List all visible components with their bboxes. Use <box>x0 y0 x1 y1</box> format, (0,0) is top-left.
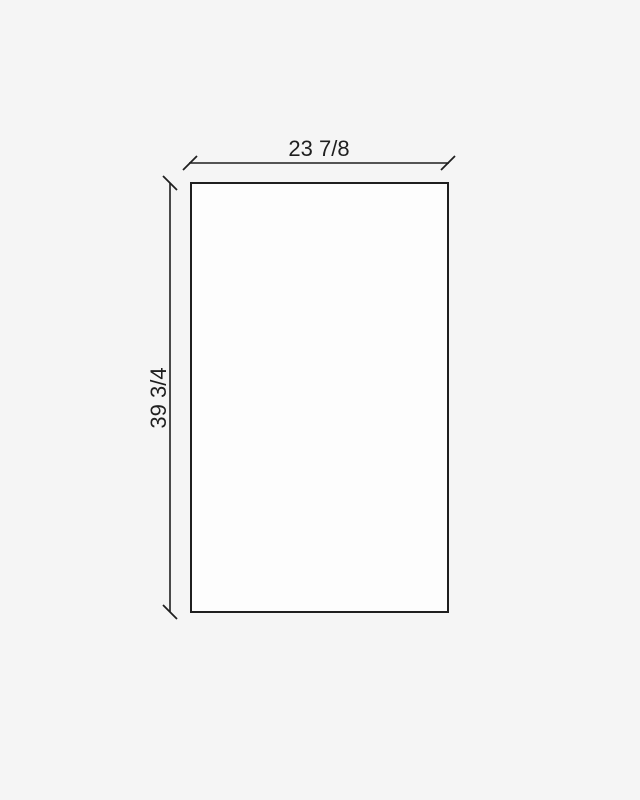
width-dimension-label: 23 7/8 <box>288 136 349 161</box>
width-dimension: 23 7/8 <box>183 136 455 170</box>
height-dimension-label: 39 3/4 <box>146 367 171 428</box>
dimension-drawing: 23 7/8 39 3/4 <box>0 0 640 800</box>
height-dimension: 39 3/4 <box>146 176 177 619</box>
panel-outline <box>191 183 448 612</box>
drawing-canvas: 23 7/8 39 3/4 <box>0 0 640 800</box>
